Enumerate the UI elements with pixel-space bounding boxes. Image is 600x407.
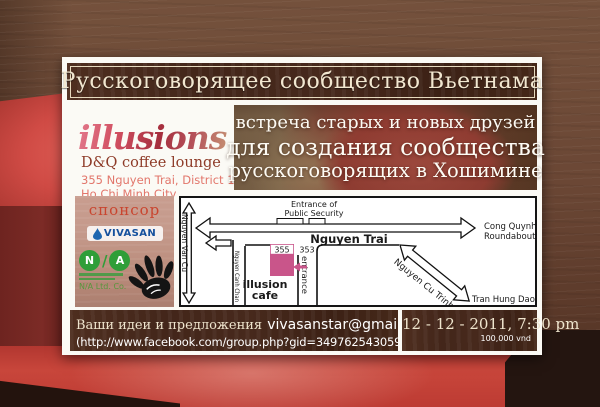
facebook-url: (http://www.facebook.com/group.php?gid=3… bbox=[76, 335, 393, 349]
map-street-main-label: Nguyen Trai bbox=[310, 232, 388, 246]
hand-logo-icon bbox=[123, 242, 184, 310]
na-slash: / bbox=[102, 252, 107, 270]
map-cafe-label-2: cafe bbox=[252, 289, 278, 302]
map-security-label-1: Entrance of bbox=[291, 200, 337, 209]
map-security-building-2 bbox=[309, 219, 325, 225]
map-building-353: 353 bbox=[299, 246, 314, 255]
map-canh-chan-label: Nguyen Canh Chan bbox=[233, 251, 241, 302]
title-banner-border: Русскоговорящее сообщество Вьетнама bbox=[70, 66, 535, 98]
map-security-label-2: Public Security bbox=[284, 209, 343, 218]
illusions-logo: illusions bbox=[68, 102, 236, 154]
map-building-355: 355 bbox=[274, 246, 289, 255]
location-map: Nguyen Van Cu Nguyen Trai Entrance of Pu… bbox=[179, 196, 537, 307]
contact-prefix: Ваши идеи и предложения bbox=[76, 318, 262, 333]
contact-email: vivasanstar@gmail.com bbox=[267, 317, 398, 333]
tagline-line3: русскоговорящих в Хошимине bbox=[228, 160, 542, 182]
sponsor-panel: спонсор VIVASAN N / A N/A Ltd. Co. bbox=[75, 196, 174, 307]
page-title: Русскоговорящее сообщество Вьетнама bbox=[61, 69, 544, 94]
contact-line1: Ваши идеи и предложения vivasanstar@gmai… bbox=[76, 314, 393, 333]
flyer-card: Русскоговорящее сообщество Вьетнама illu… bbox=[62, 57, 542, 355]
venue-address-line1: 355 Nguyen Trai, District 1 bbox=[81, 173, 236, 187]
tagline-line1: встреча старых и новых друзей bbox=[236, 113, 536, 133]
venue-block: illusions D&Q coffee lounge 355 Nguyen T… bbox=[68, 102, 236, 196]
na-circle-n: N bbox=[79, 250, 100, 271]
couch-back bbox=[0, 206, 70, 356]
tagline-box: встреча старых и новых друзей для создан… bbox=[234, 105, 537, 190]
map-tran-hung-dao-label: Tran Hung Dao bbox=[471, 295, 535, 305]
date-box: 12 - 12 - 2011, 7:30 pm 100,000 vnd bbox=[402, 310, 537, 351]
nguyen-cu-trinh-arrow: Nguyen Cu Trinh bbox=[387, 238, 475, 305]
map-security-building-1 bbox=[277, 219, 303, 225]
map-roundabout-label-1: Cong Quynh bbox=[484, 222, 535, 232]
vivasan-wordmark: VIVASAN bbox=[104, 228, 156, 239]
map-entrance-label: entrance bbox=[300, 256, 309, 294]
contact-box: Ваши идеи и предложения vivasanstar@gmai… bbox=[70, 310, 398, 351]
map-roundabout-label-2: Roundabout bbox=[484, 232, 535, 242]
event-datetime: 12 - 12 - 2011, 7:30 pm bbox=[402, 315, 537, 333]
venue-subtitle: D&Q coffee lounge bbox=[68, 155, 236, 171]
tagline-line2: для создания сообщества bbox=[226, 134, 545, 160]
droplet-icon bbox=[93, 228, 102, 240]
map-drawing: Nguyen Van Cu Nguyen Trai Entrance of Pu… bbox=[181, 198, 535, 305]
map-street-left-label: Nguyen Van Cu bbox=[181, 214, 189, 272]
vivasan-logo: VIVASAN bbox=[87, 226, 163, 241]
title-banner: Русскоговорящее сообщество Вьетнама bbox=[67, 63, 537, 100]
sponsor-label: спонсор bbox=[75, 201, 174, 219]
event-price: 100,000 vnd bbox=[402, 334, 537, 343]
